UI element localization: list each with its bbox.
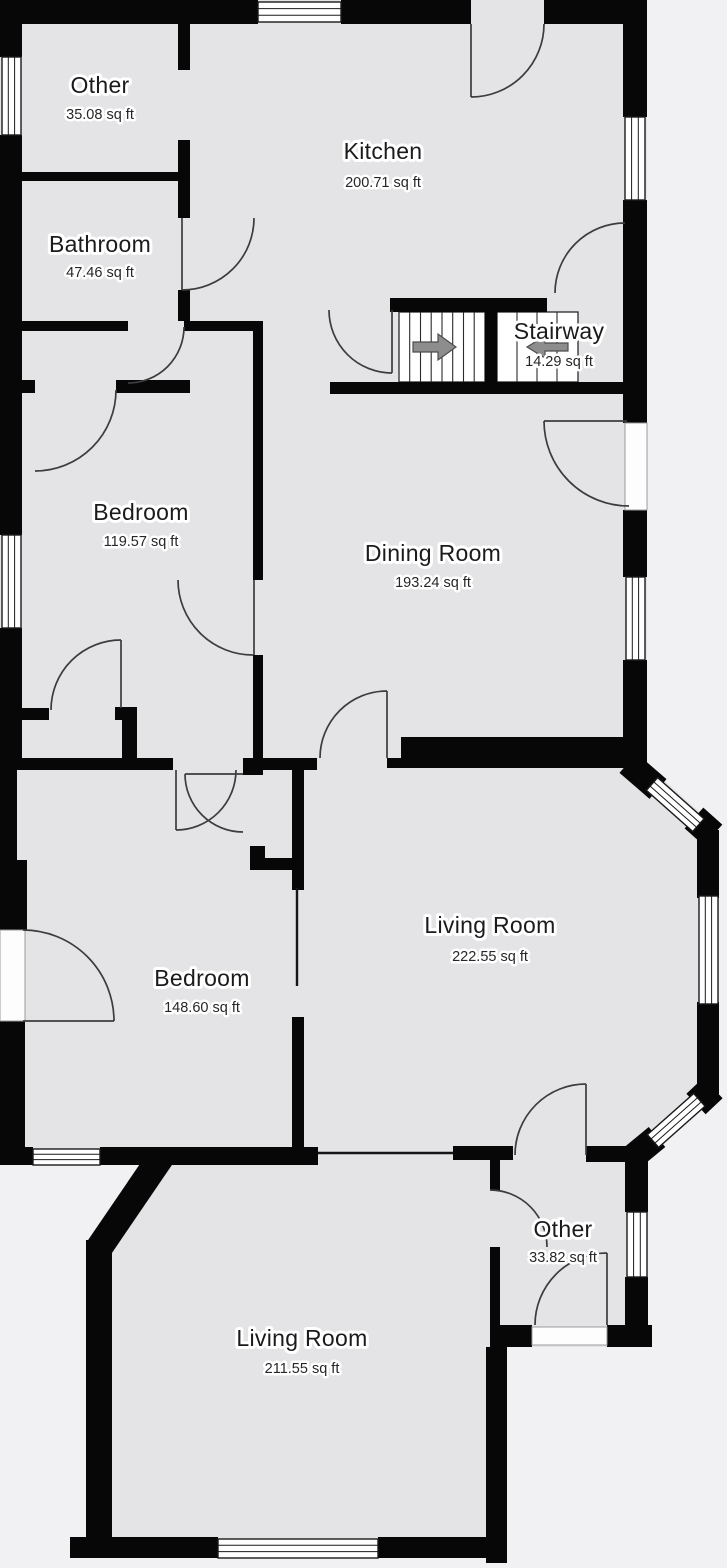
window-bedroom2-bottom	[33, 1149, 100, 1165]
room-label-bedroom-1: Bedroom	[93, 499, 188, 525]
room-label-bedroom-2: Bedroom	[154, 965, 249, 991]
room-label-other-2: Other	[533, 1216, 592, 1242]
room-area-living-room-1: 222.55 sq ft	[452, 949, 528, 965]
floorplan-canvas: Other 35.08 sq ft Kitchen 200.71 sq ft B…	[0, 0, 727, 1568]
window-top	[258, 2, 341, 22]
room-label-dining-room: Dining Room	[365, 540, 501, 566]
room-area-bathroom: 47.46 sq ft	[66, 265, 134, 281]
room-area-bedroom-1: 119.57 sq ft	[104, 534, 179, 550]
window-bedroom1-left	[2, 535, 21, 628]
room-area-stairway: 14.29 sq ft	[525, 354, 593, 370]
window-kitchen-right	[625, 117, 645, 200]
window-left-upper	[2, 57, 21, 135]
room-area-living-room-2: 211.55 sq ft	[265, 1361, 340, 1377]
room-label-bathroom: Bathroom	[49, 231, 151, 257]
window-living2-bottom	[218, 1539, 378, 1558]
window-dining-right	[626, 577, 645, 660]
window-bay-right	[699, 896, 718, 1004]
room-label-living-room-1: Living Room	[424, 912, 555, 938]
room-area-other-1: 35.08 sq ft	[66, 107, 134, 123]
room-area-bedroom-2: 148.60 sq ft	[164, 1000, 240, 1016]
room-label-other-1: Other	[70, 72, 129, 98]
window-other2-right	[627, 1212, 647, 1277]
room-area-kitchen: 200.71 sq ft	[345, 175, 421, 191]
room-area-dining-room: 193.24 sq ft	[395, 575, 471, 591]
room-label-kitchen: Kitchen	[344, 138, 423, 164]
room-area-other-2: 33.82 sq ft	[529, 1250, 597, 1266]
room-label-stairway: Stairway	[514, 318, 605, 344]
room-label-living-room-2: Living Room	[236, 1325, 367, 1351]
floorplan-drawing: Other 35.08 sq ft Kitchen 200.71 sq ft B…	[0, 0, 727, 1568]
